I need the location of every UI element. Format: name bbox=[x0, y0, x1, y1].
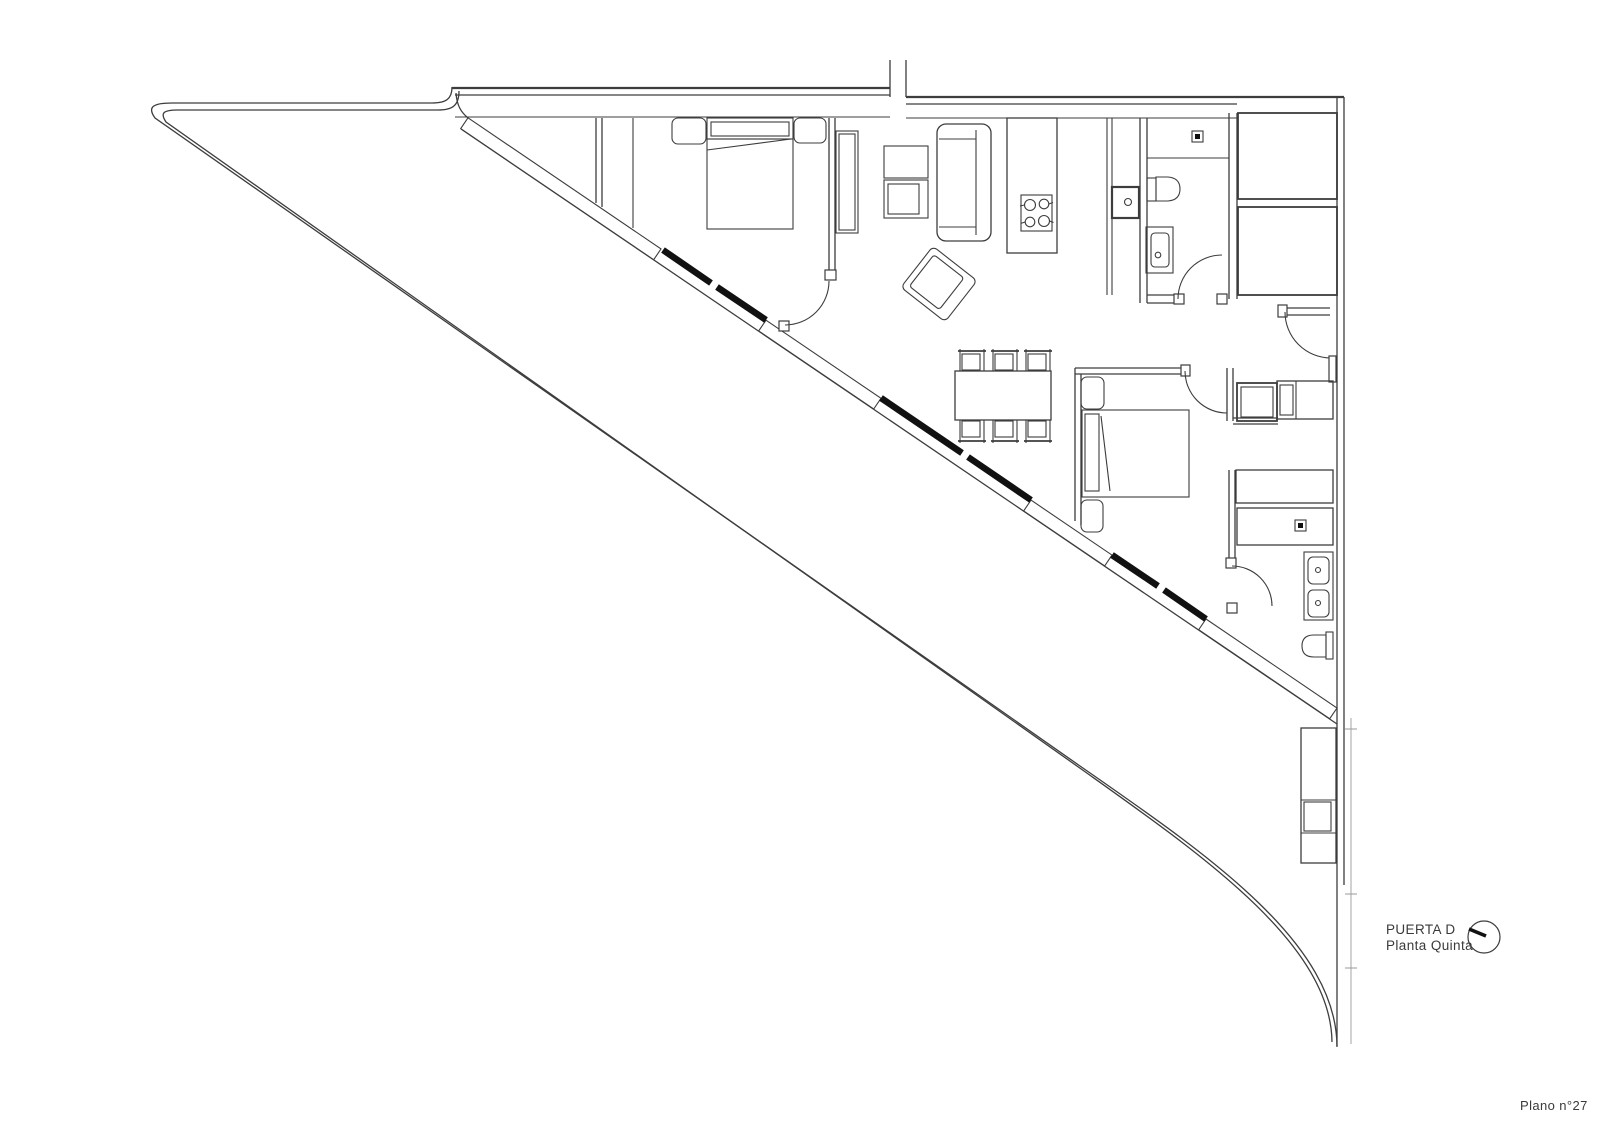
kitchen-island bbox=[1007, 118, 1057, 253]
sheet-fold bbox=[1101, 416, 1110, 491]
sheet-number-label: Plano n°27 bbox=[1520, 1098, 1588, 1113]
nightstand bbox=[1081, 500, 1103, 532]
mattress bbox=[1082, 410, 1189, 497]
living-room bbox=[836, 124, 991, 322]
bedroom-2-bed bbox=[1081, 377, 1189, 532]
dining-chair bbox=[991, 349, 1019, 371]
double-washbasin bbox=[1304, 552, 1333, 620]
washbasin bbox=[1146, 227, 1173, 273]
floor-plan-sheet: PUERTA D Planta Quinta Plano n°27 bbox=[0, 0, 1600, 1131]
shower-drain bbox=[1192, 131, 1203, 142]
door-label: PUERTA D bbox=[1386, 922, 1473, 938]
bathroom-2 bbox=[1226, 470, 1333, 659]
dining-chair bbox=[991, 420, 1019, 443]
sofa bbox=[937, 124, 991, 241]
dining-set bbox=[955, 349, 1052, 443]
facade-glazing bbox=[456, 93, 1337, 724]
shower-tray bbox=[1237, 508, 1333, 545]
floor-plan-drawing bbox=[0, 0, 1600, 1131]
plan-title: PUERTA D Planta Quinta bbox=[1386, 922, 1473, 953]
right-wall bbox=[1337, 97, 1357, 1046]
dining-table bbox=[955, 371, 1051, 420]
dining-chair bbox=[958, 420, 986, 443]
toilet bbox=[1147, 177, 1180, 201]
toilet bbox=[1302, 632, 1333, 659]
terrace-closet bbox=[1301, 728, 1336, 863]
kitchen bbox=[1007, 118, 1139, 295]
sheet-fold bbox=[707, 139, 791, 150]
entry-closets bbox=[1227, 368, 1333, 424]
closet-counter bbox=[1236, 470, 1333, 503]
entry-door bbox=[1278, 305, 1336, 382]
dining-chair bbox=[958, 349, 986, 371]
shelf-unit bbox=[884, 146, 928, 218]
bedroom-1-walls bbox=[596, 118, 835, 272]
nightstand bbox=[1081, 377, 1104, 409]
dining-chair bbox=[1024, 349, 1052, 371]
bedroom-2-walls bbox=[1075, 365, 1190, 525]
top-wall bbox=[452, 60, 1344, 118]
kitchen-sink bbox=[1112, 187, 1139, 218]
armchair bbox=[901, 246, 977, 321]
bedroom-2-door bbox=[1185, 371, 1227, 413]
floor-label: Planta Quinta bbox=[1386, 938, 1473, 954]
pillow bbox=[711, 122, 789, 136]
mattress bbox=[707, 139, 793, 229]
dining-chair bbox=[1024, 420, 1052, 443]
bathroom-2-door bbox=[1232, 566, 1272, 606]
terrace-boundary bbox=[152, 87, 1337, 1047]
tv-cabinet bbox=[836, 131, 858, 233]
bathroom-1-door bbox=[1174, 255, 1227, 304]
nightstand bbox=[672, 118, 706, 144]
bathroom-1 bbox=[1140, 113, 1237, 304]
shower-drain bbox=[1295, 520, 1306, 531]
cooktop bbox=[1020, 195, 1054, 231]
shaft-squares bbox=[1238, 113, 1337, 295]
headboard bbox=[1085, 414, 1099, 491]
nightstand bbox=[794, 118, 826, 143]
bedroom-1-bed bbox=[672, 118, 826, 229]
door-leaf bbox=[1329, 356, 1336, 382]
bedroom-1-door bbox=[779, 270, 836, 331]
